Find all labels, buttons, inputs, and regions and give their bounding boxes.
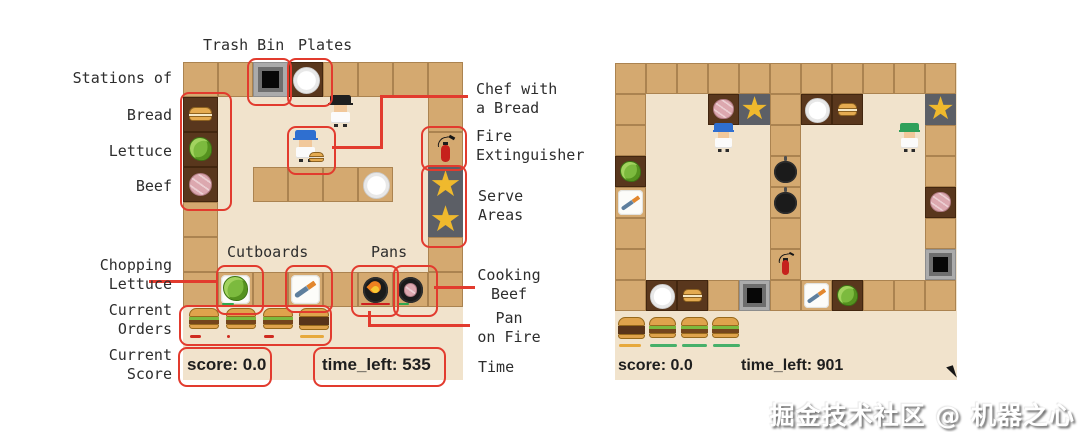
floor-cell: [323, 202, 358, 237]
pan-beef-box: [393, 265, 438, 317]
counter-cell: [253, 167, 288, 202]
floor-cell: [832, 218, 863, 249]
score-box: [178, 347, 272, 387]
bread-station: [832, 94, 863, 125]
floor-cell: [253, 202, 288, 237]
pan-fire-box: [351, 265, 399, 317]
counter-with-plate: [358, 167, 393, 202]
label-chef-with-bread: Chef with a Bread: [476, 80, 557, 118]
label-bread: Bread: [34, 106, 172, 125]
floor-cell: [646, 94, 677, 125]
counter-cell: [615, 280, 646, 311]
counter-cell: [925, 280, 956, 311]
floor-cell: [288, 202, 323, 237]
label-cooking-beef: Cooking Beef: [476, 266, 542, 304]
order-burger: [618, 317, 645, 342]
right-time-text: time_left: 901: [741, 357, 843, 375]
time-box: [313, 347, 446, 387]
floor-cell: [646, 218, 677, 249]
floor-cell: [677, 218, 708, 249]
counter-cell: [183, 272, 218, 307]
cutboard-knife: [801, 280, 832, 311]
floor-cell: [832, 249, 863, 280]
counter-cell: [708, 280, 739, 311]
floor-cell: [863, 218, 894, 249]
floor-cell: [677, 249, 708, 280]
chef-line-v: [380, 95, 383, 149]
floor-cell: [646, 187, 677, 218]
floor-cell: [646, 125, 677, 156]
serve-area: ★: [739, 94, 770, 125]
floor-cell: [739, 156, 770, 187]
floor-cell: [708, 218, 739, 249]
counter-cell: [770, 94, 801, 125]
serve-areas-box: [421, 165, 467, 248]
floor-cell: [801, 249, 832, 280]
trash-bin: [925, 249, 956, 280]
plate-icon: [363, 172, 391, 200]
floor-cell: [894, 187, 925, 218]
counter-cell: [925, 125, 956, 156]
counter-cell: [894, 280, 925, 311]
chef-sprite: [900, 123, 919, 153]
label-stations-of: Stations of: [34, 69, 172, 88]
label-pans: Pans: [371, 243, 407, 262]
floor-cell: [894, 218, 925, 249]
label-beef: Beef: [34, 177, 172, 196]
counter-cell: [739, 63, 770, 94]
counter-cell: [615, 249, 646, 280]
floor-cell: [739, 249, 770, 280]
counter-cell: [615, 218, 646, 249]
label-trash-bin: Trash Bin: [203, 36, 284, 55]
star-icon: ★: [740, 94, 768, 126]
trash-bin-box: [247, 58, 292, 106]
counter-cell: [770, 280, 801, 311]
floor-cell: [708, 187, 739, 218]
floor-cell: [677, 94, 708, 125]
counter-cell: [925, 156, 956, 187]
chef-sprite: [714, 123, 733, 153]
label-pan-on-fire: Pan on Fire: [474, 309, 544, 347]
order-burger: [649, 317, 676, 342]
label-time: Time: [478, 358, 514, 377]
floor-cell: [801, 218, 832, 249]
floor-cell: [894, 156, 925, 187]
beef-station: [708, 94, 739, 125]
chef-line-h1: [332, 146, 383, 149]
stations-box: [180, 92, 232, 211]
counter-cell: [677, 63, 708, 94]
fire-extinguisher: [770, 249, 801, 280]
chef-box: [287, 126, 336, 175]
knife-icon: [620, 195, 640, 211]
label-plates: Plates: [298, 36, 352, 55]
chef-sprite: [330, 95, 351, 129]
floor-cell: [393, 97, 428, 132]
floor-cell: [646, 249, 677, 280]
floor-cell: [677, 125, 708, 156]
floor-cell: [832, 187, 863, 218]
floor-cell: [708, 249, 739, 280]
floor-cell: [863, 94, 894, 125]
counter-cell: [801, 63, 832, 94]
orders-box: [179, 305, 332, 346]
label-fire-extinguisher: Fire Extinguisher: [476, 127, 584, 165]
floor-cell: [801, 125, 832, 156]
label-serve-areas: Serve Areas: [478, 187, 523, 225]
floor-cell: [894, 249, 925, 280]
counter-cell: [925, 218, 956, 249]
floor-cell: [863, 125, 894, 156]
floor-cell: [832, 125, 863, 156]
label-cutboards: Cutboards: [227, 243, 308, 262]
counter-cell: [183, 237, 218, 272]
floor-cell: [801, 187, 832, 218]
pan-empty: [770, 187, 801, 218]
serve-area: ★: [925, 94, 956, 125]
label-current-score: Current Score: [34, 346, 172, 384]
counter-cell: [358, 62, 393, 97]
floor-cell: [739, 218, 770, 249]
floor-cell: [677, 187, 708, 218]
floor-cell: [358, 132, 393, 167]
plate-station: [801, 94, 832, 125]
floor-cell: [358, 202, 393, 237]
floor-cell: [739, 187, 770, 218]
plate-station: [646, 280, 677, 311]
floor-cell: [358, 97, 393, 132]
counter-cell: [770, 125, 801, 156]
chef-line-h2: [380, 95, 468, 98]
panfire-line-h: [368, 324, 470, 327]
counter-cell: [615, 63, 646, 94]
floor-cell: [253, 132, 288, 167]
order-burger: [681, 317, 708, 342]
trash-bin: [739, 280, 770, 311]
counter-cell: [615, 94, 646, 125]
plates-box: [287, 58, 333, 107]
counter-cell: [832, 63, 863, 94]
floor-cell: [863, 156, 894, 187]
lettuce-station: [615, 156, 646, 187]
watermark: 掘金技术社区 @ 机器之心: [770, 396, 1075, 432]
floor-cell: [708, 156, 739, 187]
counter-cell: [894, 63, 925, 94]
knife-icon: [806, 288, 826, 304]
cutboard-knife: [615, 187, 646, 218]
floor-cell: [863, 187, 894, 218]
floor-cell: [863, 249, 894, 280]
counter-cell: [708, 63, 739, 94]
label-chopping-lettuce: Chopping Lettuce: [34, 256, 172, 294]
floor-cell: [739, 125, 770, 156]
bread-station: [677, 280, 708, 311]
counter-cell: [925, 63, 956, 94]
figure-overcooked-environments: ★★ ★★ score: 0.0 time_left: 535 score: 0…: [0, 0, 1080, 432]
counter-cell: [428, 62, 463, 97]
right-score-text: score: 0.0: [618, 357, 693, 375]
counter-cell: [770, 218, 801, 249]
beef-station: [925, 187, 956, 218]
counter-cell: [393, 62, 428, 97]
counter-cell: [770, 63, 801, 94]
order-burger: [712, 317, 739, 342]
floor-cell: [894, 94, 925, 125]
label-current-orders: Current Orders: [34, 301, 172, 339]
cooking-line: [434, 286, 475, 289]
right-game-board: ★★: [615, 63, 957, 380]
floor-cell: [832, 156, 863, 187]
label-lettuce: Lettuce: [34, 142, 172, 161]
lettuce-station: [832, 280, 863, 311]
counter-cell: [863, 280, 894, 311]
counter-cell: [615, 125, 646, 156]
counter-cell: [863, 63, 894, 94]
pan-empty: [770, 156, 801, 187]
floor-cell: [677, 156, 708, 187]
counter-cell: [646, 63, 677, 94]
floor-cell: [646, 156, 677, 187]
star-icon: ★: [926, 94, 954, 126]
floor-cell: [801, 156, 832, 187]
